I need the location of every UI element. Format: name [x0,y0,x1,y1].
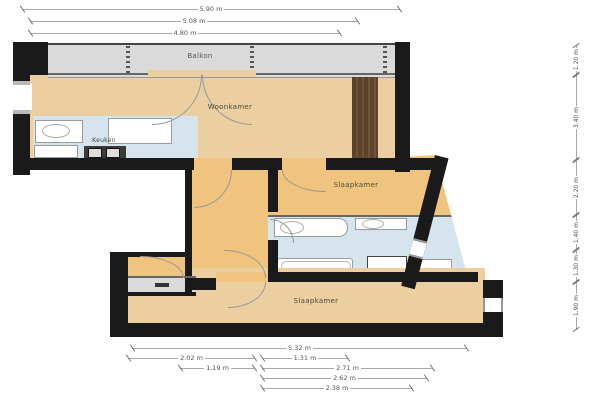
wall-bedroom-top [326,158,445,170]
entrance-door [11,84,32,110]
dimension-top-1: 5.90 m [22,5,400,13]
dimension-bottom-7: 2.38 m [262,384,412,392]
balcony-divider [383,45,387,73]
balcony-divider [126,45,130,73]
door-opening [282,158,326,170]
dimension-label: 1.40 m [573,221,580,244]
wall-living-bottom [13,158,194,170]
wall-bottom [110,323,503,337]
door-frame [13,81,30,85]
dimension-right-1: 1.20 m [571,45,581,75]
dimension-label: 2.62 m [331,374,358,382]
dimension-right-3: 2.20 m [571,160,581,215]
dimension-bottom-2: 2.02 m [128,354,255,362]
dimension-label: 5.32 m [286,344,313,352]
door-frame [13,110,30,114]
bedroom-bottom-label: Slaapkamer [256,297,376,305]
dimension-label: 2.71 m [334,364,361,372]
wall-hall-left [185,162,192,292]
dimension-label: 5.90 m [198,5,225,13]
wall-bathroom-bottom [268,272,478,282]
dimension-label: 4.80 m [172,29,199,37]
dimension-label: 5.08 m [181,17,208,25]
living-room-label: Woonkamer [170,103,290,111]
dimension-bottom-4: 1.19 m [180,364,255,372]
dimension-top-3: 4.80 m [30,29,340,37]
dimension-label: 1.20 m [573,48,580,71]
dimension-bottom-5: 2.71 m [262,364,433,372]
dimension-right-5: 1.30 m [571,250,581,282]
dimension-top-2: 5.08 m [30,17,358,25]
dimension-label: 2.38 m [324,384,351,392]
dimension-label: 1.19 m [204,364,231,372]
wall-hall-bottom-stub [192,278,216,290]
wall-vestibule-top [126,252,188,257]
dimension-label: 2.02 m [178,354,205,362]
dimension-bottom-6: 2.62 m [262,374,427,382]
floor-plan: 5.90 m 5.08 m 4.80 m 1.20 m 3.40 m 2.20 … [0,0,600,400]
stove-burner [106,148,120,158]
dimension-label: 2.20 m [573,176,580,199]
shaft [352,77,378,162]
dimension-label: 1.90 m [573,294,580,317]
dimension-right-4: 1.40 m [571,215,581,250]
wall-hall-right [268,162,278,212]
wall-right-top [395,42,410,172]
dimension-label: 1.30 m [573,254,580,277]
dimension-bottom-1: 5.32 m [132,344,467,352]
kitchen-sink [42,124,70,138]
dimension-label: 1.31 m [292,354,319,362]
kitchen-counter [34,145,78,158]
stove-burner [88,148,102,158]
mini-balcony-mark [155,283,169,287]
door-opening [194,158,232,170]
sink-bowl [362,219,384,229]
kitchen-label: Keuken [72,137,136,144]
dimension-right-6: 1.90 m [571,282,581,330]
wall-mini-balcony-bottom [128,292,196,296]
balcony-divider [250,45,254,73]
bedroom-middle-label: Slaapkamer [296,181,416,189]
balcony-label: Balkon [150,52,250,60]
dimension-right-2: 3.40 m [571,75,581,160]
wall-corner-topleft [30,42,48,75]
dimension-bottom-3: 1.31 m [262,354,348,362]
dimension-label: 3.40 m [573,106,580,129]
window [483,298,503,312]
